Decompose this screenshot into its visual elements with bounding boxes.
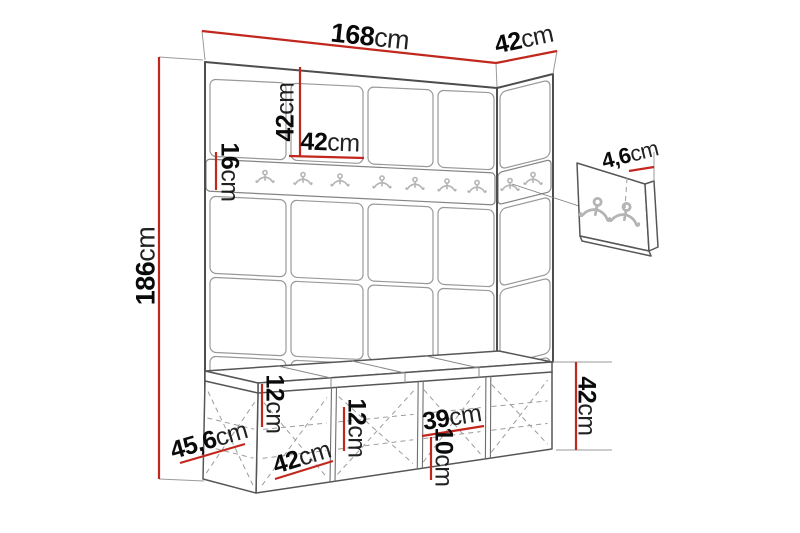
dim-total-height-label: 186cm (133, 227, 160, 306)
furniture-dimension-diagram: 168cm 42cm 42cm 42cm 16cm 186cm 4,6cm 42… (0, 0, 800, 533)
dim-shelf-spacing-right-label: 10cm (431, 427, 456, 486)
hook-board (577, 163, 658, 256)
dim-rail-height-label: 16cm (217, 142, 242, 201)
storage-bench (203, 351, 552, 493)
wardrobe-drawing (0, 0, 800, 533)
dim-shelf-spacing-left-label: 12cm (262, 374, 287, 433)
dim-shelf-spacing-mid-label: 12cm (344, 398, 369, 457)
dim-panel-height-label: 42cm (274, 82, 299, 141)
dim-line-hook-board-depth (629, 167, 654, 171)
dim-panel-width-label: 42cm (300, 129, 360, 156)
dim-bench-height-label: 42cm (574, 376, 599, 435)
bench-box-front (256, 372, 552, 493)
